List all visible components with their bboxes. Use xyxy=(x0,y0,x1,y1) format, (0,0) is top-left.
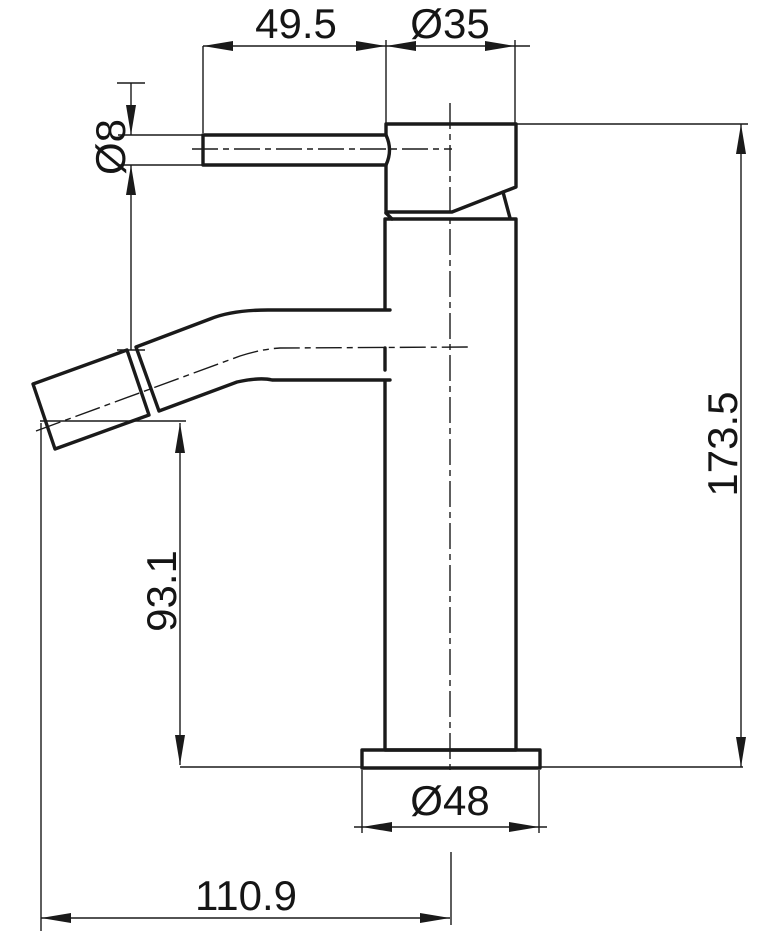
dim-arrow xyxy=(509,822,539,832)
dim-arrow xyxy=(420,913,450,923)
technical-drawing-page: 49.5 Ø35 Ø8 173.5 93.1 xyxy=(0,0,767,949)
dim-head-diameter: Ø35 xyxy=(386,0,515,51)
dim-label-handle-bar-diameter: Ø8 xyxy=(87,119,134,175)
spout-fill xyxy=(136,310,390,411)
dim-arrow xyxy=(736,124,746,154)
faucet-head-fill xyxy=(386,124,516,212)
dim-spout-outlet-height: 93.1 xyxy=(40,421,186,765)
lever-foot-line xyxy=(503,192,510,218)
dim-arrow xyxy=(203,41,233,51)
mixer-tap-dimension-drawing: 49.5 Ø35 Ø8 173.5 93.1 xyxy=(0,0,767,949)
lever-handle-fill xyxy=(203,135,390,165)
dim-label-handle-length: 49.5 xyxy=(255,0,337,47)
aerator-tip xyxy=(33,350,149,449)
dim-base-diameter: Ø48 xyxy=(354,770,547,833)
dim-arrow xyxy=(362,822,392,832)
dim-label-head-diameter: Ø35 xyxy=(410,0,489,47)
dim-label-overall-height: 173.5 xyxy=(699,391,746,496)
dim-arrow xyxy=(736,737,746,767)
base-flange xyxy=(362,750,540,768)
dim-label-spout-outlet-height: 93.1 xyxy=(138,550,185,632)
dim-spout-reach: 110.9 xyxy=(41,423,451,931)
dim-arrow xyxy=(41,913,71,923)
faucet-outline xyxy=(33,124,743,768)
dim-arrow xyxy=(175,735,185,765)
dim-arrow xyxy=(356,41,386,51)
dim-label-spout-reach: 110.9 xyxy=(195,872,297,919)
dim-handle-bar-diameter: Ø8 xyxy=(87,83,203,350)
dim-arrow xyxy=(175,423,185,453)
dim-overall-height: 173.5 xyxy=(517,124,748,767)
dim-label-base-diameter: Ø48 xyxy=(410,777,489,824)
